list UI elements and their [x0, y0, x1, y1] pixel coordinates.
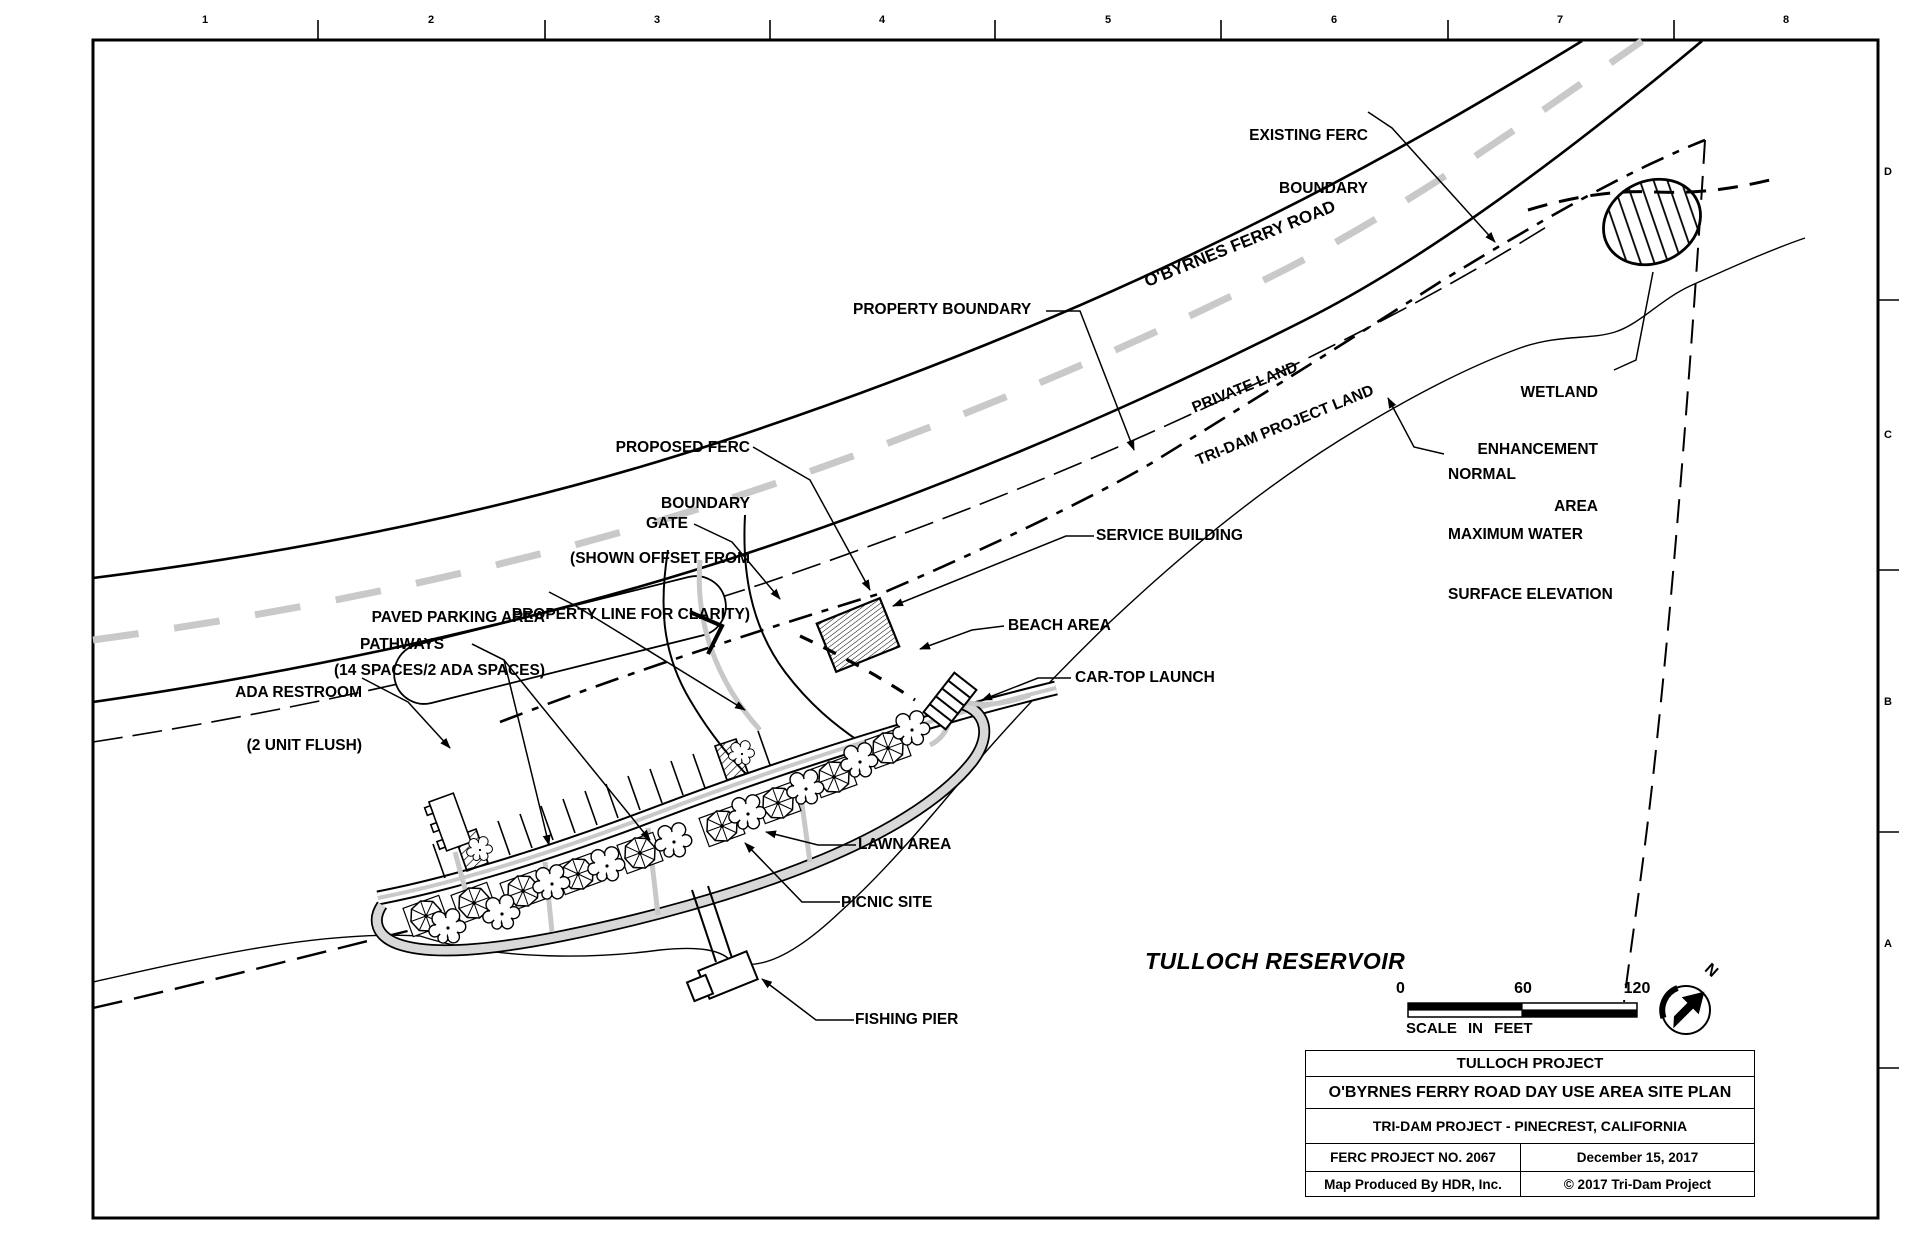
title-block-copyright: © 2017 Tri-Dam Project [1521, 1172, 1754, 1196]
label-picnic-site: PICNIC SITE [841, 894, 932, 912]
label-lawn-area: LAWN AREA [858, 836, 951, 854]
scale-bar [1408, 1003, 1637, 1017]
ruler-number: 6 [1324, 14, 1344, 26]
title-block-sheet-title: O'BYRNES FERRY ROAD DAY USE AREA SITE PL… [1306, 1076, 1754, 1108]
ruler-number: 8 [1776, 14, 1796, 26]
grid-letter: C [1881, 429, 1895, 441]
ruler-number: 1 [195, 14, 215, 26]
grid-letter: D [1881, 166, 1895, 178]
ruler-number: 4 [872, 14, 892, 26]
road-centerline [93, 41, 1642, 640]
ruler-number: 7 [1550, 14, 1570, 26]
label-gate: GATE [646, 515, 688, 533]
label-property-boundary: PROPERTY BOUNDARY [853, 301, 1031, 319]
scale-tick-60: 60 [1505, 980, 1541, 998]
label-beach-area: BEACH AREA [1008, 617, 1111, 635]
title-block-ferc-number: FERC PROJECT NO. 2067 [1306, 1144, 1521, 1171]
ruler-number: 5 [1098, 14, 1118, 26]
grid-letter: B [1881, 696, 1895, 708]
title-block: TULLOCH PROJECT O'BYRNES FERRY ROAD DAY … [1305, 1050, 1755, 1197]
site-plan-sheet: 1 2 3 4 5 6 7 8 D C B A EXISTING FERC BO… [0, 0, 1920, 1242]
grid-letter: A [1881, 938, 1895, 950]
title-block-location: TRI-DAM PROJECT - PINECREST, CALIFORNIA [1306, 1108, 1754, 1143]
restroom-building [423, 793, 471, 853]
label-fishing-pier: FISHING PIER [855, 1011, 958, 1029]
ruler-number: 3 [647, 14, 667, 26]
grid-ticks [1878, 300, 1899, 1068]
label-car-top-launch: CAR-TOP LAUNCH [1075, 669, 1215, 687]
label-tulloch-reservoir: TULLOCH RESERVOIR [1145, 948, 1405, 975]
scale-tick-120: 120 [1615, 980, 1659, 998]
title-block-credits: Map Produced By HDR, Inc. © 2017 Tri-Dam… [1306, 1171, 1754, 1196]
wetland-area-shape [1589, 164, 1714, 281]
title-block-project: TULLOCH PROJECT [1306, 1051, 1754, 1076]
ruler-number: 2 [421, 14, 441, 26]
ruler-ticks [318, 20, 1674, 40]
scale-tick-0: 0 [1396, 980, 1420, 998]
title-block-date: December 15, 2017 [1521, 1144, 1754, 1171]
title-block-ferc-date: FERC PROJECT NO. 2067 December 15, 2017 [1306, 1143, 1754, 1171]
label-service-building: SERVICE BUILDING [1096, 527, 1243, 545]
title-block-producer: Map Produced By HDR, Inc. [1306, 1172, 1521, 1196]
label-existing-ferc-boundary: EXISTING FERC BOUNDARY [1218, 92, 1368, 215]
ferc-boundary-descent [1624, 140, 1705, 1002]
label-pathways: PATHWAYS [360, 636, 444, 654]
label-ada-restroom: ADA RESTROOM (2 UNIT FLUSH) [180, 649, 362, 772]
label-normal-max-water: NORMAL MAXIMUM WATER SURFACE ELEVATION [1448, 425, 1613, 625]
north-arrow [1662, 983, 1713, 1034]
service-building-shape [817, 598, 900, 672]
scale-caption: SCALE IN FEET [1406, 1020, 1533, 1037]
